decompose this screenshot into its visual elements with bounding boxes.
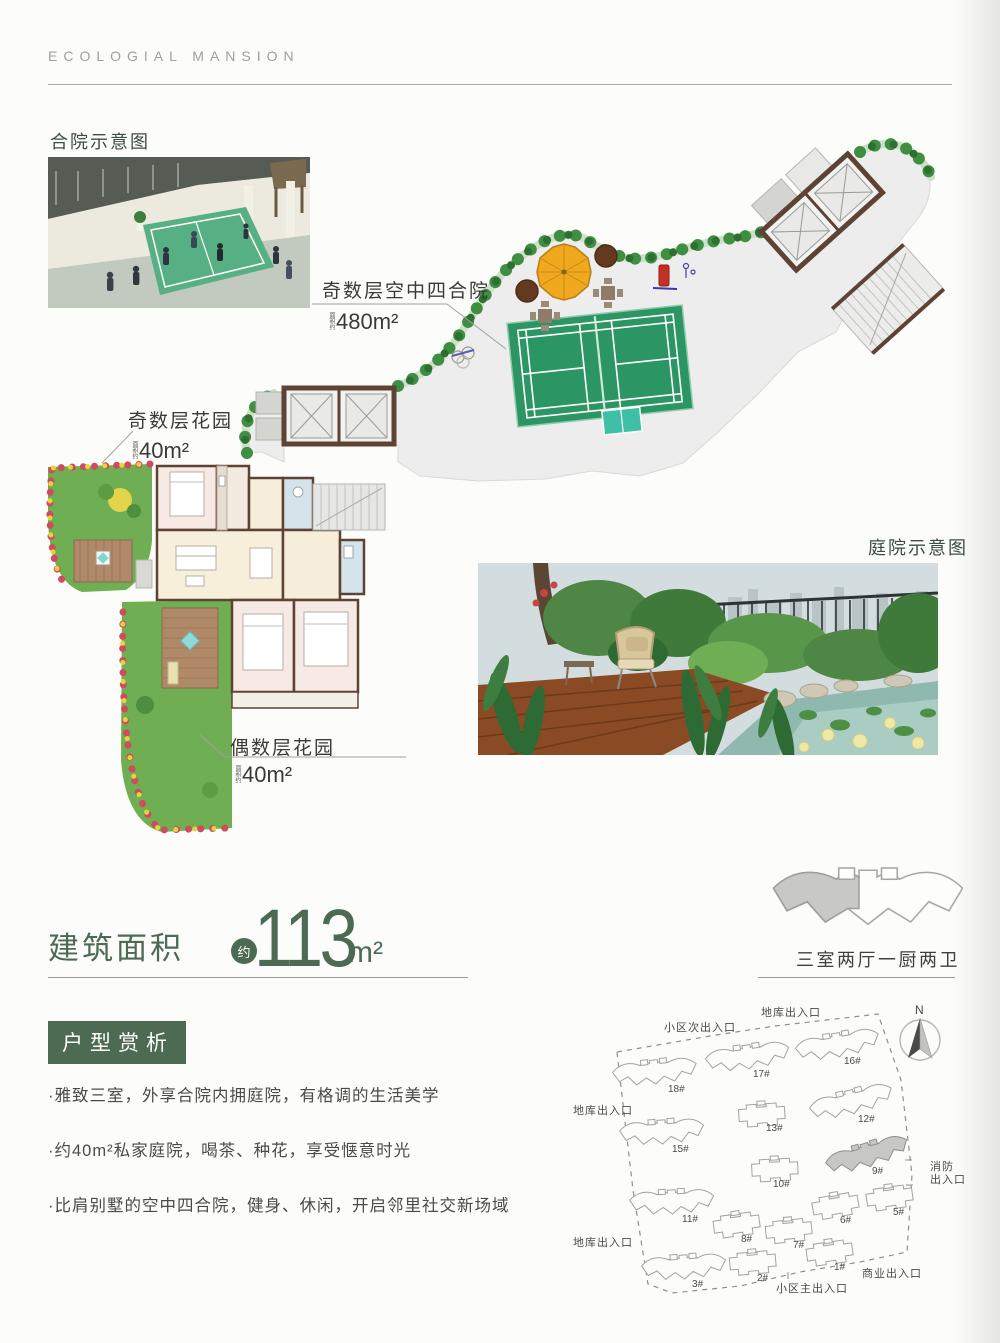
brochure-page: ECOLOGIAL MANSION [0,0,1000,1343]
building-number-label: 17# [753,1069,770,1080]
analysis-bullets: ·雅致三室，外享合院内拥庭院，有格调的生活美学 ·约40m²私家庭院，喝茶、种花… [48,1082,528,1247]
buildings-layer: 18#17#16#15#13#12#9#10#11#8#7#6#5#3#2#1# [612,1025,914,1290]
siteplan-building-2# [729,1247,777,1276]
area-prefix: 面积约 [328,312,334,333]
building-number-label: 3# [692,1279,704,1290]
odd-garden-label: 奇数层花园 [128,406,233,433]
area-prefix: 面积约 [131,441,137,462]
north-label: N [915,1003,924,1017]
analysis-bullet: ·比肩别墅的空中四合院，健身、休闲，开启邻里社交新场域 [48,1192,528,1216]
courtyard-photo-art [48,157,310,308]
entrance-label: 地库出入口 [573,1235,633,1249]
entrance-label: 小区主出入口 [776,1281,848,1295]
building-number-label: 18# [668,1084,685,1095]
siteplan-building-8# [712,1208,761,1239]
sky-courtyard-area: 面积约 480m² [328,311,398,333]
siteplan-building-12# [807,1079,895,1124]
building-area-unit: m² [348,936,383,970]
entrance-label: 地库出入口 [573,1103,633,1117]
entrance-label: 出入口 [930,1172,966,1186]
pingpong-table [602,407,642,435]
round-planter [595,245,617,267]
garden-photo-label: 庭院示意图 [868,534,968,560]
building-number-label: 9# [872,1166,884,1177]
analysis-title-badge: 户型赏析 [48,1021,186,1064]
even-garden-area: 面积约 40m² [234,764,292,786]
building-number-label: 11# [682,1214,698,1225]
siteplan-building-3# [641,1251,727,1282]
building-number-label: 13# [766,1123,783,1134]
header-divider [48,84,952,85]
brand-title: ECOLOGIAL MANSION [48,48,300,64]
key-plan [768,856,963,944]
room-layout-text: 三室两厅一厨两卫 [796,946,960,972]
sky-courtyard-label: 奇数层空中四合院 [322,276,490,303]
entrance-label: 地库出入口 [761,1005,821,1019]
building-number-label: 7# [793,1240,805,1251]
siteplan-building-17# [704,1038,791,1074]
building-number-label: 10# [773,1179,790,1190]
north-compass: N [900,1003,940,1060]
garden-photo-art [478,563,938,755]
siteplan-building-16# [794,1025,881,1064]
badminton-court [507,305,693,427]
building-area-section: 建筑面积 约 113 m² [48,886,528,976]
siteplan-building-15# [619,1116,705,1147]
siteplan-building-11# [629,1187,714,1216]
siteplan-building-5# [865,1181,914,1212]
building-number-label: 15# [672,1144,689,1155]
round-planter [516,280,538,302]
analysis-bullet: ·约40m²私家庭院，喝茶、种花，享受惬意时光 [48,1137,528,1161]
building-area-label: 建筑面积 [48,923,184,968]
site-plan: 18#17#16#15#13#12#9#10#11#8#7#6#5#3#2#1#… [560,995,970,1315]
layout-divider [758,977,955,978]
even-garden-label: 偶数层花园 [230,733,335,760]
building-number-label: 5# [893,1207,905,1218]
apartment-floorplan [48,464,385,832]
unit-stairwell [313,484,385,530]
siteplan-building-6# [811,1188,861,1221]
entrance-label: 小区次出入口 [664,1020,736,1034]
siteplan-building-1# [805,1236,854,1267]
building-number-label: 6# [840,1215,852,1226]
building-area-value: 113 [254,898,355,980]
siteplan-building-18# [612,1055,698,1089]
building-number-label: 1# [834,1262,846,1273]
area-divider [48,977,468,978]
building-number-label: 2# [757,1273,769,1284]
siteplan-building-9# [823,1131,911,1178]
area-prefix: 面积约 [234,765,240,786]
siteplan-building-7# [764,1215,812,1245]
building-number-label: 16# [844,1056,861,1067]
odd-garden-area: 面积约 40m² [131,440,189,462]
entrance-label: 商业出入口 [862,1266,922,1280]
courtyard-photo-label: 合院示意图 [50,128,150,154]
courtyard-photo [48,157,310,308]
garden-photo [478,563,938,755]
building-number-label: 12# [858,1114,875,1125]
analysis-bullet: ·雅致三室，外享合院内拥庭院，有格调的生活美学 [48,1082,528,1106]
entrance-label: 消防 [930,1159,954,1173]
building-number-label: 8# [741,1234,753,1245]
